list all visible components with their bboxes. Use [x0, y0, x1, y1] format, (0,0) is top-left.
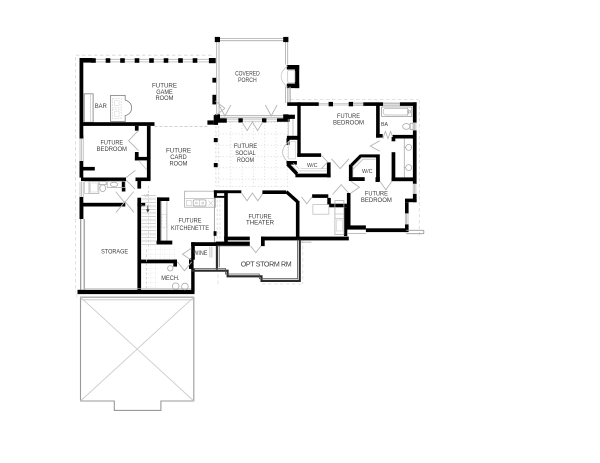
svg-text:FUTURE: FUTURE	[234, 143, 258, 150]
svg-text:SOCIAL: SOCIAL	[235, 150, 256, 157]
svg-text:THEATER: THEATER	[246, 220, 274, 227]
svg-text:W/C: W/C	[362, 169, 373, 175]
svg-text:ROOM: ROOM	[237, 157, 254, 164]
svg-text:BEDROOM: BEDROOM	[361, 197, 392, 204]
svg-text:OPT STORM RM: OPT STORM RM	[241, 261, 292, 269]
svg-text:BA: BA	[381, 122, 388, 128]
svg-text:W/C: W/C	[307, 163, 318, 169]
svg-text:BEDROOM: BEDROOM	[97, 146, 128, 153]
svg-text:ROOM: ROOM	[170, 160, 188, 167]
svg-text:KITCHENETTE: KITCHENETTE	[171, 225, 209, 232]
svg-text:ROOM: ROOM	[156, 95, 174, 102]
svg-text:PORCH: PORCH	[238, 77, 257, 84]
svg-text:FUTURE: FUTURE	[179, 217, 202, 224]
svg-text:BAR: BAR	[95, 103, 107, 110]
svg-text:WINE: WINE	[193, 250, 208, 257]
svg-text:STORAGE: STORAGE	[101, 249, 128, 256]
svg-text:MECH.: MECH.	[161, 275, 179, 282]
svg-text:BEDROOM: BEDROOM	[333, 120, 364, 127]
